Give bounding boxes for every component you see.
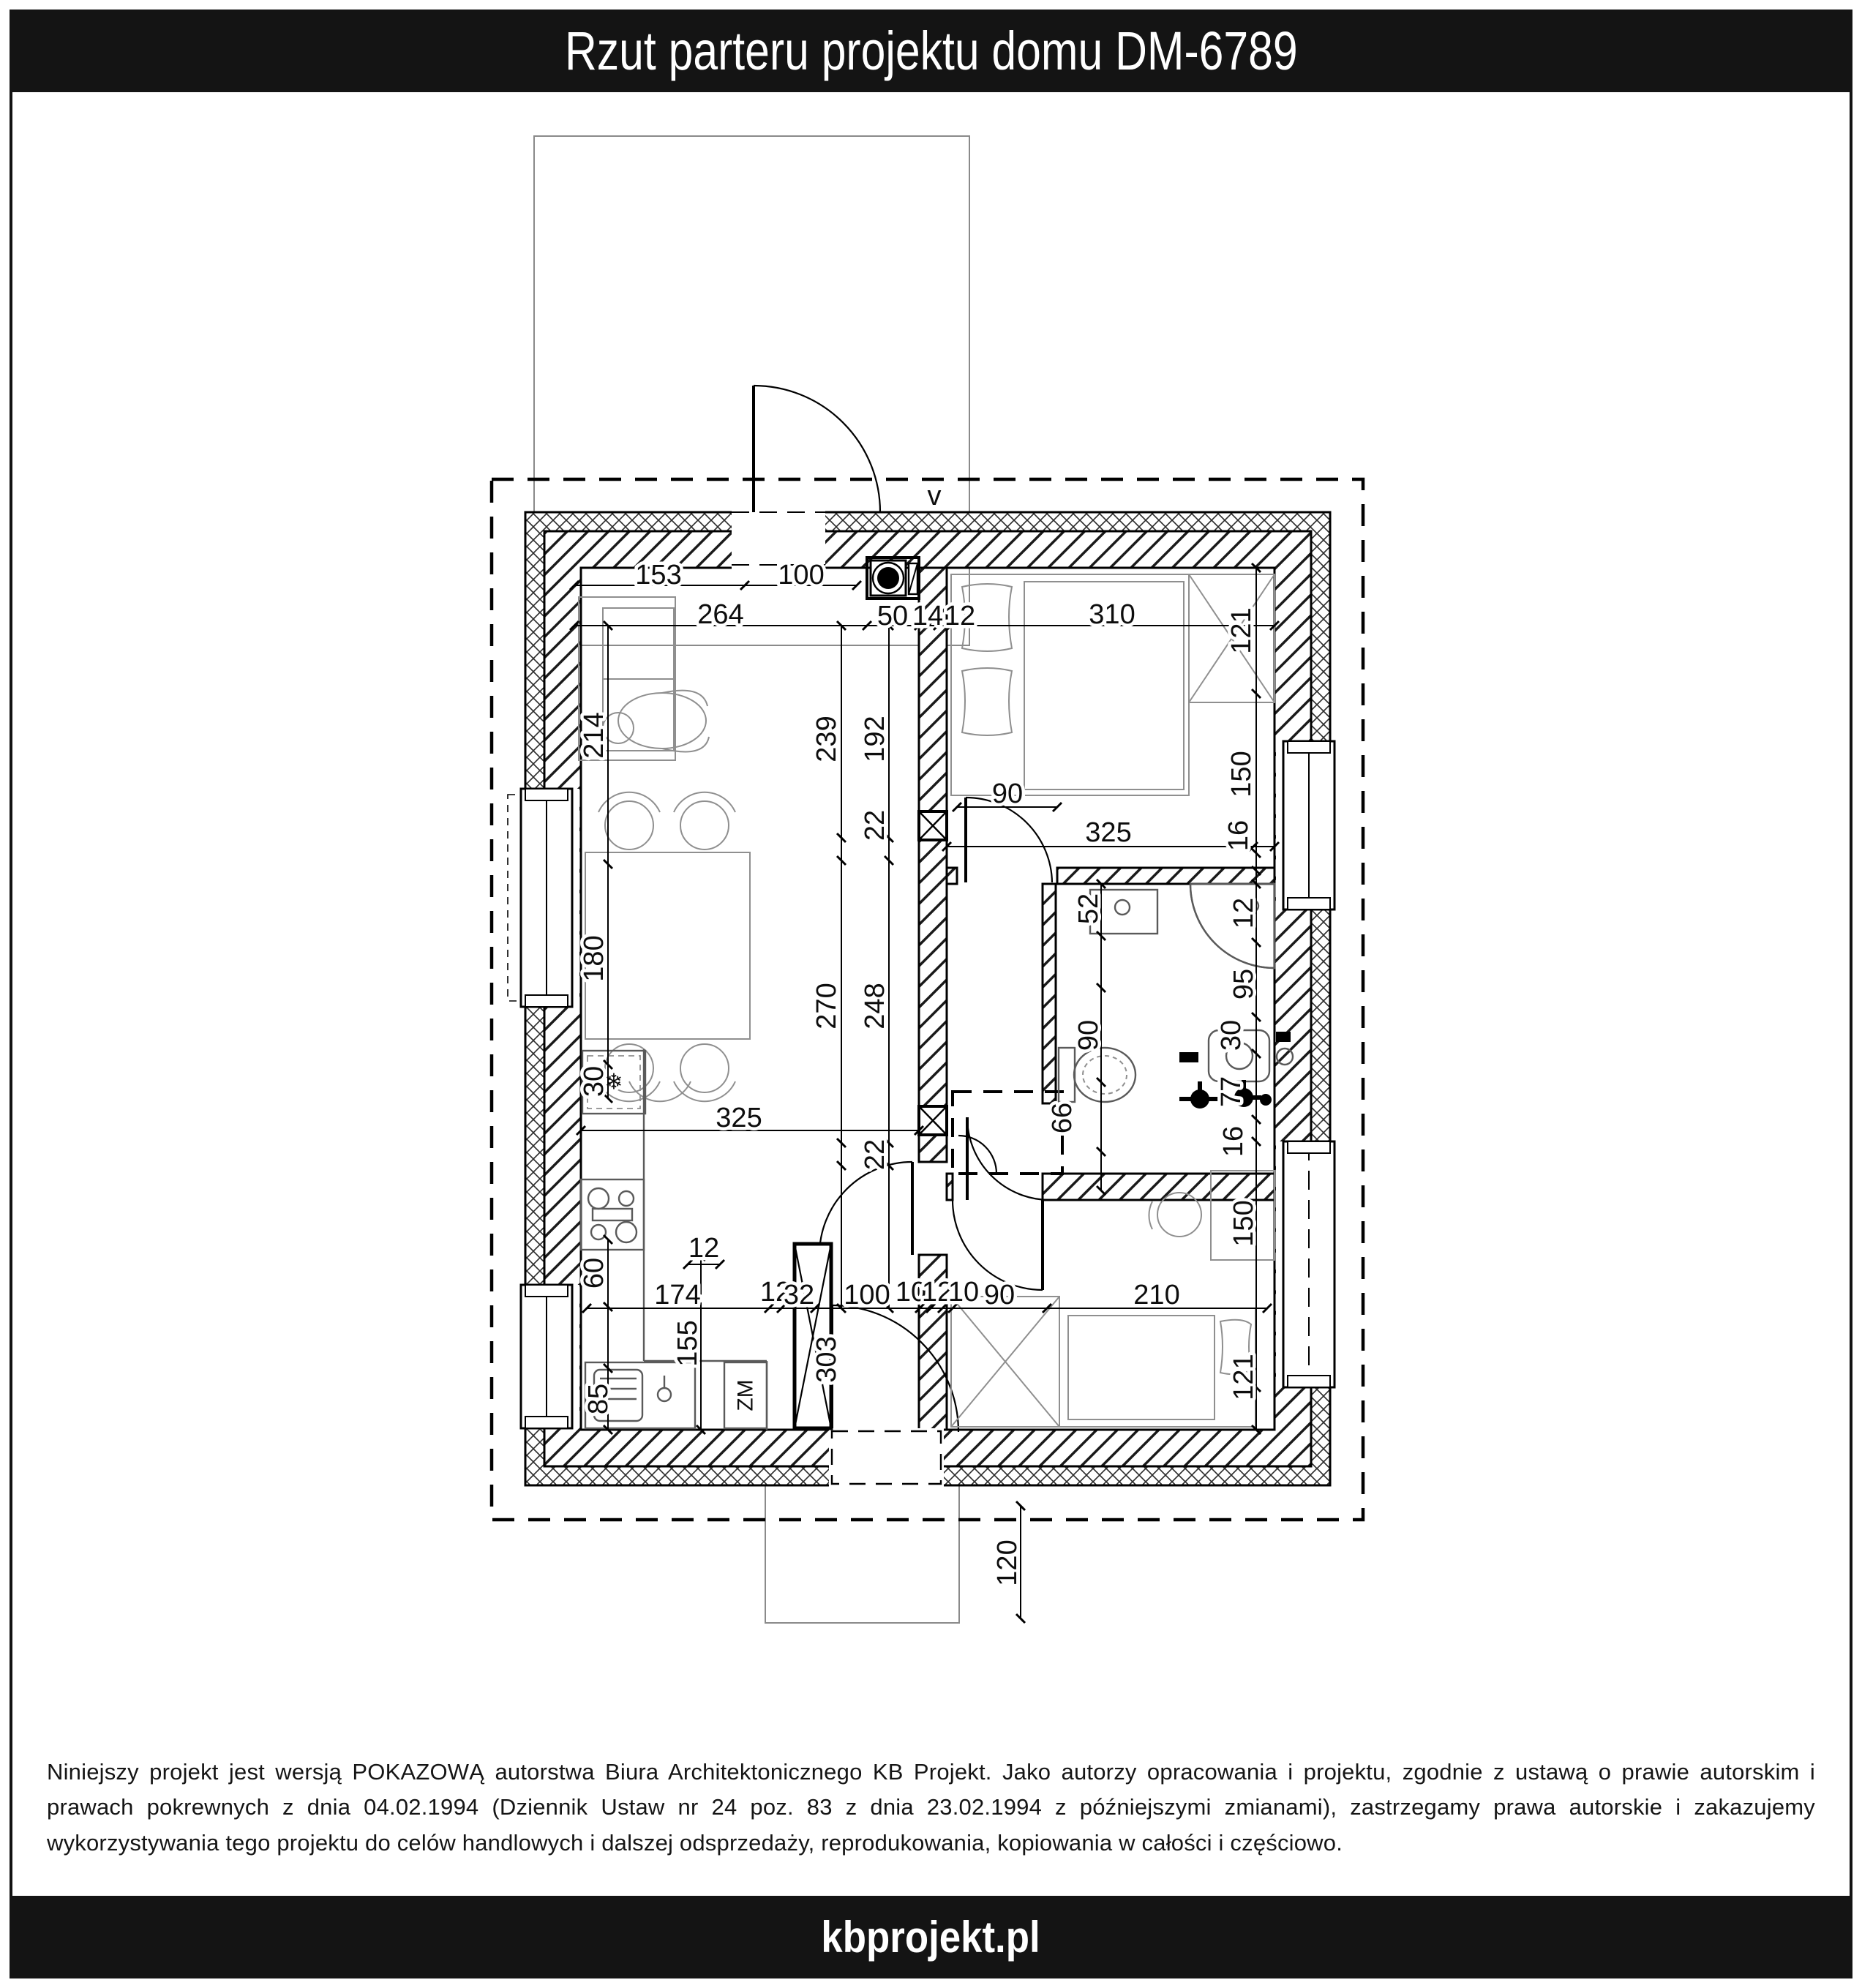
page: { "header": { "title": "Rzut parteru pro… xyxy=(0,0,1862,1988)
dimension-label: 77 xyxy=(1216,1076,1247,1107)
footer-bar: kbprojekt.pl xyxy=(10,1896,1852,1978)
bedroom2-wardrobe xyxy=(951,1297,1059,1427)
dimension-label: 95 xyxy=(1228,969,1259,999)
dimension-label: 22 xyxy=(860,1139,890,1170)
dimension-label: 121 xyxy=(1228,1354,1259,1400)
bedroom1-bed xyxy=(951,574,1189,795)
dining-table xyxy=(585,852,750,1039)
dimension-label: 303 xyxy=(811,1336,842,1382)
copyright-disclaimer: Niniejszy projekt jest wersją POKAZOWĄ a… xyxy=(47,1755,1815,1861)
window-right-1 xyxy=(1276,741,1340,909)
dining-chairs xyxy=(598,792,735,1101)
dimension-label: 10 xyxy=(948,1277,979,1308)
dimension-label: 90 xyxy=(1073,1020,1104,1051)
dimension-label: 120 xyxy=(992,1539,1023,1586)
window-left-1 xyxy=(508,789,579,1007)
dimension-label: 174 xyxy=(654,1280,700,1310)
hall-door xyxy=(819,1162,912,1255)
dimension-label: 52 xyxy=(1073,893,1104,924)
dimension-label: 12 xyxy=(1228,898,1259,929)
bedroom2-bed xyxy=(1059,1308,1255,1427)
boiler-icon xyxy=(871,560,917,596)
title-bar: Rzut parteru projektu domu DM-6789 xyxy=(10,10,1852,92)
dimension-label: 90 xyxy=(984,1280,1015,1310)
page-title: Rzut parteru projektu domu DM-6789 xyxy=(565,20,1298,82)
dimension-label: 325 xyxy=(1085,817,1131,848)
dimension-label: 90 xyxy=(992,779,1023,809)
dimension-label: 14 xyxy=(912,601,943,631)
dimension-label: 22 xyxy=(860,810,890,841)
svg-text:ZM: ZM xyxy=(734,1379,758,1411)
dimension-label: 325 xyxy=(716,1103,762,1133)
person-figure xyxy=(603,691,709,752)
dimension-label: 264 xyxy=(697,599,743,630)
bedroom1-door xyxy=(966,798,1052,882)
dimension-label: 60 xyxy=(579,1258,609,1289)
dimension-label: 210 xyxy=(1133,1280,1179,1310)
dimension-label: 16 xyxy=(1218,1126,1249,1157)
dimension-label: 153 xyxy=(635,560,681,590)
bathroom-door xyxy=(967,1117,1050,1200)
dimension-label: v xyxy=(928,481,942,511)
dimension-label: 121 xyxy=(1226,607,1257,653)
dimension-label: 192 xyxy=(860,716,890,762)
dishwasher-icon: ZM xyxy=(724,1362,767,1428)
dimension-label: 248 xyxy=(860,983,890,1029)
dimension-label: 12 xyxy=(688,1233,719,1264)
dimension-label: 100 xyxy=(778,560,824,590)
dimension-label: 214 xyxy=(579,712,609,758)
hall-wardrobe xyxy=(795,1244,831,1428)
dimension-label: 270 xyxy=(811,983,842,1029)
dimension-label: 180 xyxy=(579,935,609,981)
dimension-label: 50 xyxy=(877,601,908,631)
window-left-2 xyxy=(515,1285,579,1428)
dimension-label: 30 xyxy=(1216,1020,1247,1051)
window-right-2 xyxy=(1276,1141,1340,1387)
dimension-label: 66 xyxy=(1047,1103,1078,1133)
dimension-label: 12 xyxy=(945,601,975,631)
dimension-label: 310 xyxy=(1089,599,1135,630)
dimension-label: 150 xyxy=(1228,1200,1259,1246)
dimension-label: 155 xyxy=(672,1320,703,1366)
dimension-label: 32 xyxy=(784,1280,814,1310)
dimension-label: 16 xyxy=(1223,820,1254,851)
dimension-label: 100 xyxy=(844,1280,890,1310)
floor-plan-drawing: ❄ ZM xyxy=(0,95,1862,1738)
dimension-label: 85 xyxy=(583,1384,614,1414)
dimension-label: 150 xyxy=(1226,751,1257,797)
website-link[interactable]: kbprojekt.pl xyxy=(822,1912,1040,1962)
toilet-icon xyxy=(1059,1048,1135,1102)
stove-icon xyxy=(581,1179,644,1250)
dimension-label: 30 xyxy=(579,1066,609,1097)
dimension-label: 239 xyxy=(811,716,842,762)
floor-plan-area: ❄ ZM xyxy=(0,95,1862,1738)
